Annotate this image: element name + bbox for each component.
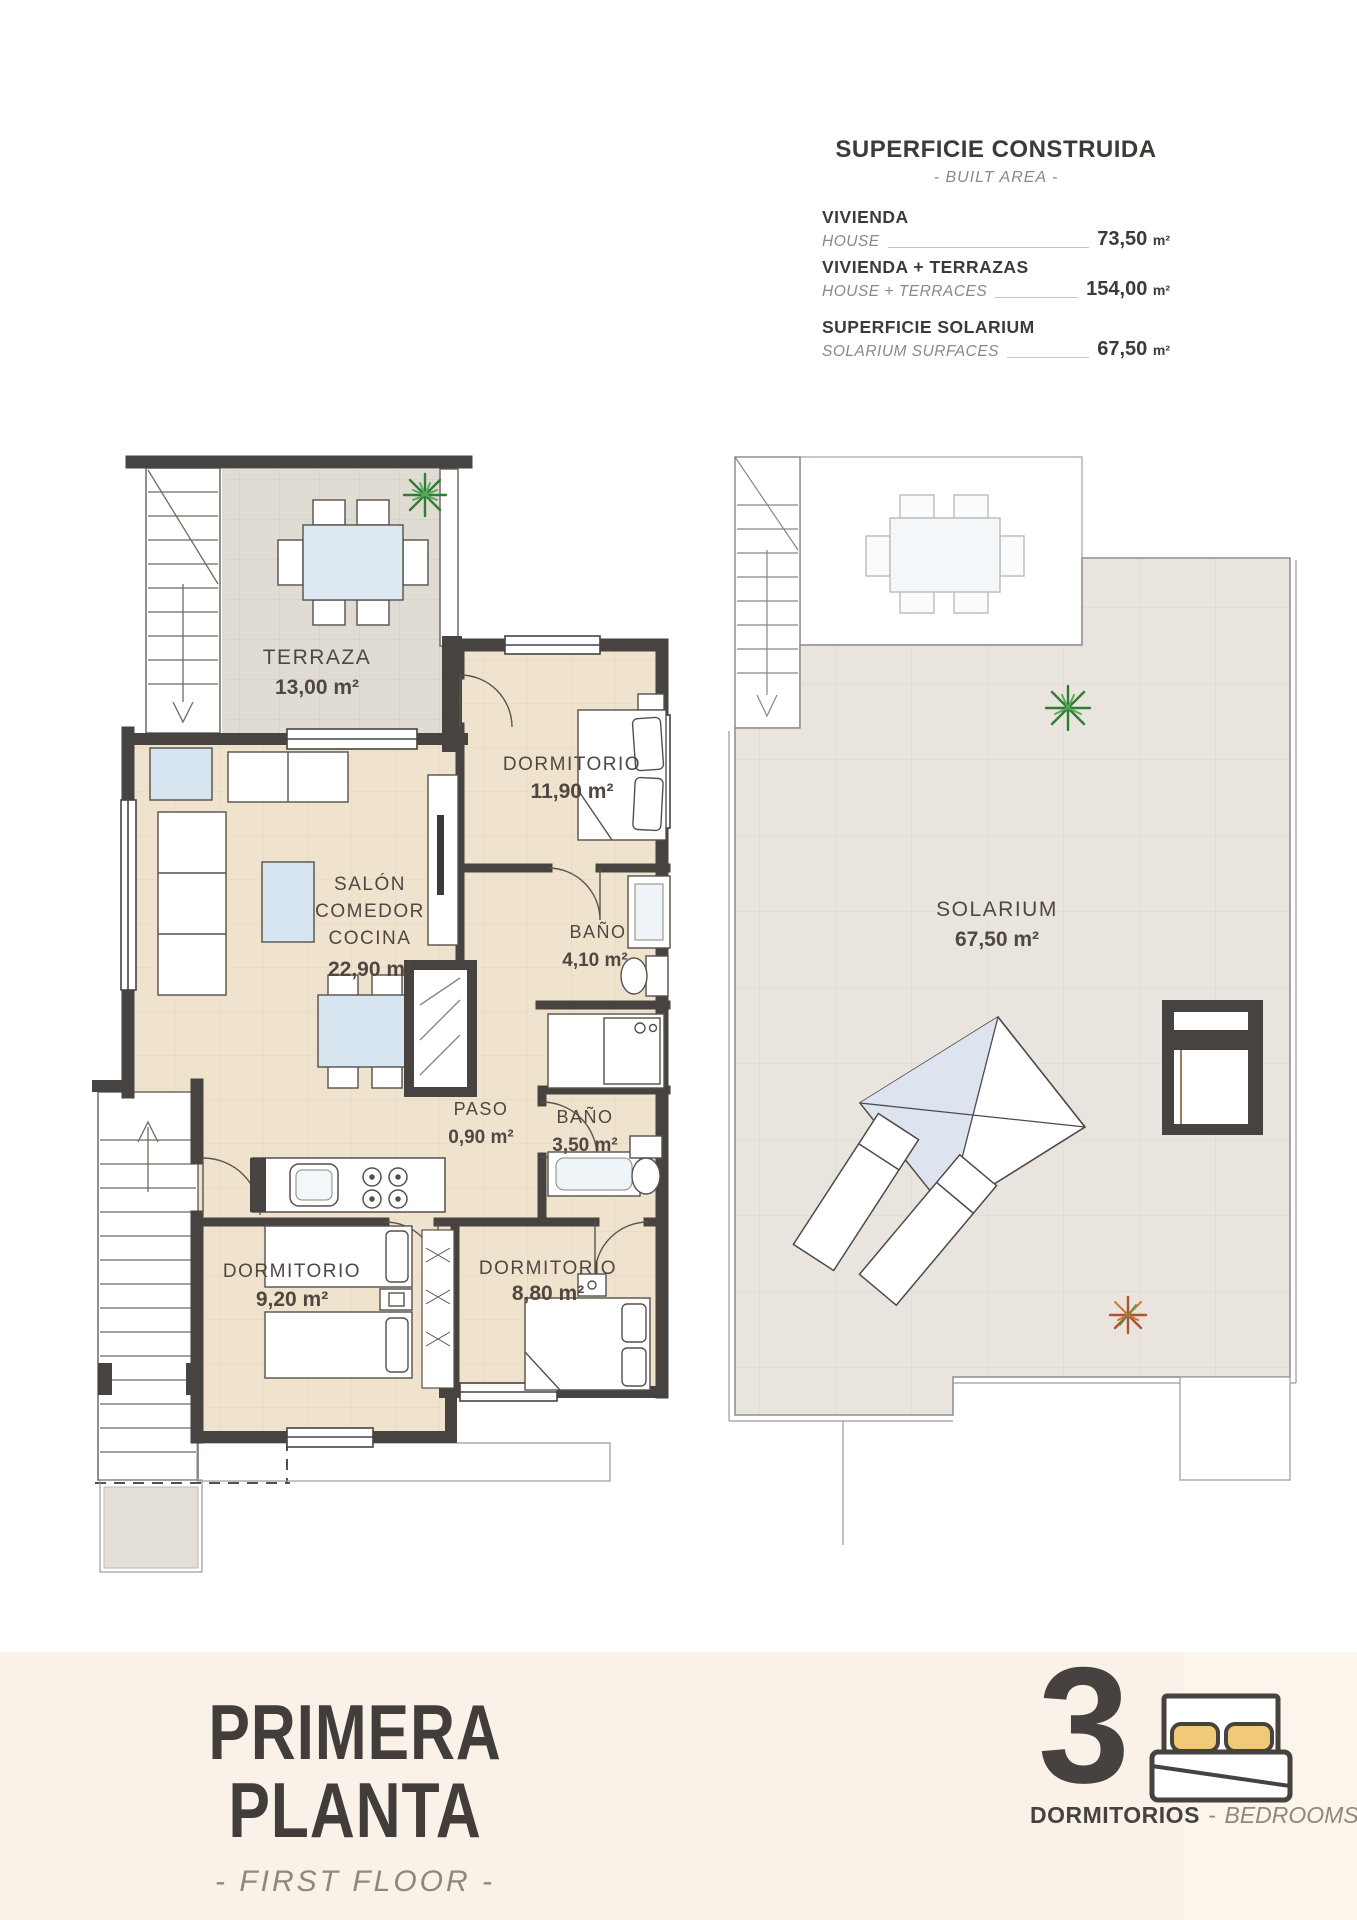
outdoor-kitchen bbox=[1162, 1000, 1263, 1135]
room-area-dormitorio2: 9,20 m² bbox=[256, 1288, 328, 1311]
stairs-bottom-left bbox=[98, 1092, 198, 1480]
sink-basin bbox=[296, 1170, 332, 1200]
chair bbox=[954, 495, 988, 518]
chair bbox=[313, 500, 345, 525]
bedrooms-block: 3 DORMITORIOS - BEDROOMS bbox=[1030, 1650, 1310, 1860]
floor-plan-drawing: TERRAZA 13,00 m² DORMITORIO 11,90 m² SAL… bbox=[0, 0, 1357, 1920]
plant-icon bbox=[1046, 686, 1090, 730]
coffee-table bbox=[262, 862, 314, 942]
floor-subtitle: - FIRST FLOOR - bbox=[10, 1865, 700, 1899]
bedrooms-count: 3 bbox=[1038, 1650, 1130, 1800]
table bbox=[890, 518, 1000, 592]
left-plan-apartment: TERRAZA 13,00 m² DORMITORIO 11,90 m² SAL… bbox=[95, 462, 670, 1572]
floor-title: PRIMERA PLANTA bbox=[79, 1693, 631, 1849]
room-label-solarium: SOLARIUM bbox=[936, 898, 1058, 921]
nightstand bbox=[638, 694, 664, 710]
room-label-dormitorio2: DORMITORIO bbox=[223, 1261, 361, 1282]
bedrooms-label-en: BEDROOMS bbox=[1225, 1802, 1357, 1828]
dining-table bbox=[303, 525, 403, 600]
room-area-salon: 22,90 m² bbox=[328, 958, 412, 981]
chair bbox=[1000, 536, 1024, 576]
bedrooms-label-separator: - bbox=[1204, 1802, 1220, 1828]
chair bbox=[403, 540, 428, 585]
room-area-dormitorio3: 8,80 m² bbox=[512, 1282, 584, 1305]
sofa-left bbox=[158, 812, 226, 995]
pillow bbox=[633, 777, 664, 830]
room-label-dormitorio1: DORMITORIO bbox=[503, 754, 641, 775]
bedrooms-label-es: DORMITORIOS bbox=[1030, 1802, 1200, 1828]
terrace-sliding-door bbox=[287, 729, 417, 749]
kitchen-counter bbox=[250, 1158, 445, 1212]
room-area-bano1: 4,10 m² bbox=[562, 950, 627, 971]
room-area-dormitorio1: 11,90 m² bbox=[531, 780, 614, 803]
sofa-top bbox=[228, 752, 348, 802]
tv-cabinet bbox=[428, 775, 458, 945]
chair bbox=[900, 495, 934, 518]
flower-plant-icon bbox=[1110, 1297, 1146, 1333]
pillow bbox=[622, 1348, 646, 1386]
deck-notch bbox=[1180, 1377, 1290, 1480]
window-dormitorio1-top bbox=[505, 636, 600, 654]
room-label-bano2: BAÑO bbox=[556, 1106, 613, 1127]
room-label-terraza: TERRAZA bbox=[263, 646, 372, 669]
solarium-deck bbox=[735, 558, 1290, 1415]
room-label-salon-1: SALÓN bbox=[334, 873, 406, 895]
chair bbox=[900, 590, 934, 613]
chair bbox=[357, 500, 389, 525]
room-label-salon-2: COMEDOR bbox=[315, 901, 425, 922]
floor-plan-page: SUPERFICIE CONSTRUIDA - BUILT AREA - VIV… bbox=[0, 0, 1357, 1920]
room-label-bano1: BAÑO bbox=[569, 921, 626, 942]
chair bbox=[954, 590, 988, 613]
room-area-solarium: 67,50 m² bbox=[955, 928, 1039, 951]
pillow bbox=[386, 1318, 408, 1372]
chair bbox=[372, 1066, 402, 1088]
room-area-bano2: 3,50 m² bbox=[552, 1135, 617, 1156]
toilet bbox=[630, 1136, 662, 1194]
chair bbox=[313, 600, 345, 625]
stairs-solarium bbox=[735, 457, 800, 728]
utility-shaft bbox=[404, 960, 477, 1097]
plant-icon bbox=[404, 474, 446, 516]
landing-tiles bbox=[104, 1487, 198, 1568]
side-table bbox=[150, 748, 212, 800]
pillow bbox=[386, 1231, 408, 1282]
room-label-dormitorio3: DORMITORIO bbox=[479, 1258, 617, 1279]
window-salon-left bbox=[121, 800, 136, 990]
chair bbox=[278, 540, 303, 585]
wardrobe bbox=[422, 1230, 454, 1388]
pillow bbox=[622, 1304, 646, 1342]
chair bbox=[357, 600, 389, 625]
stairs-top-left bbox=[146, 468, 220, 733]
room-label-salon-3: COCINA bbox=[329, 928, 412, 949]
room-label-paso: PASO bbox=[454, 1099, 509, 1119]
bedrooms-label: DORMITORIOS - BEDROOMS bbox=[1030, 1802, 1302, 1829]
footer-title-block: PRIMERA PLANTA - FIRST FLOOR - bbox=[10, 1693, 700, 1899]
bed-icon bbox=[1142, 1692, 1300, 1810]
right-plan-solarium: SOLARIUM 67,50 m² bbox=[729, 457, 1296, 1545]
bano1-fixtures bbox=[621, 876, 670, 996]
wall-block bbox=[98, 1363, 112, 1395]
table bbox=[318, 995, 412, 1067]
chair bbox=[866, 536, 890, 576]
room-area-terraza: 13,00 m² bbox=[275, 676, 359, 699]
chair bbox=[328, 1066, 358, 1088]
laundry-closet bbox=[548, 1014, 664, 1088]
room-area-paso: 0,90 m² bbox=[448, 1127, 513, 1148]
window-dormitorio2-bottom bbox=[287, 1428, 373, 1447]
wall-cap bbox=[250, 1158, 266, 1212]
porch-outline bbox=[197, 1443, 610, 1481]
